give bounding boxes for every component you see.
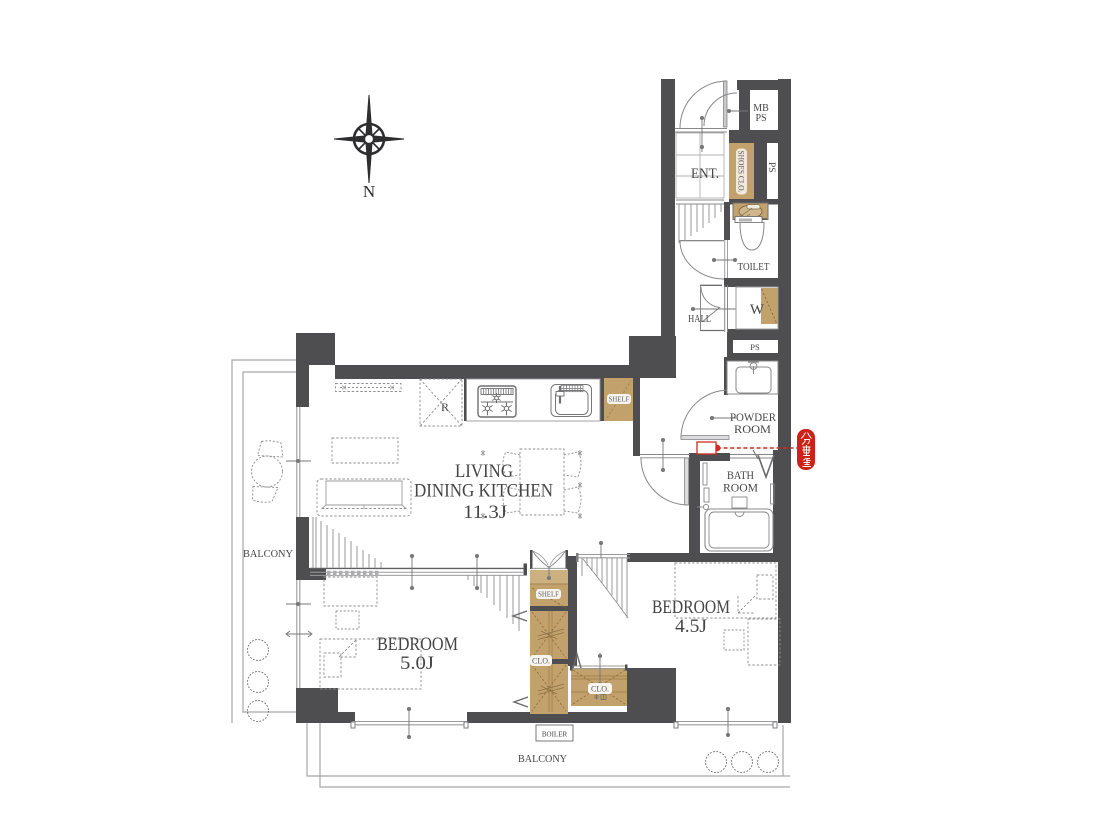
svg-text:ROOM: ROOM [734, 424, 771, 436]
svg-text:BALCONY: BALCONY [518, 754, 567, 765]
svg-text:HALL: HALL [688, 313, 711, 325]
svg-text:BEDROOM: BEDROOM [377, 634, 458, 655]
svg-text:PS: PS [755, 113, 766, 124]
svg-text:SHELF: SHELF [609, 397, 630, 404]
svg-text:CLO.: CLO. [532, 657, 550, 666]
svg-text:BEDROOM: BEDROOM [652, 597, 730, 618]
svg-text:DINING KITCHEN: DINING KITCHEN [414, 481, 553, 502]
svg-text:BALCONY: BALCONY [243, 549, 293, 560]
svg-text:SHELF: SHELF [538, 592, 559, 599]
svg-text:5.0J: 5.0J [400, 653, 434, 674]
svg-text:4.5J: 4.5J [675, 616, 707, 637]
svg-text:LIVING: LIVING [455, 461, 513, 482]
svg-text:CLO.: CLO. [591, 685, 609, 694]
svg-text:PS: PS [766, 162, 776, 173]
svg-text:PS: PS [750, 342, 760, 352]
svg-text:BATH: BATH [727, 470, 754, 482]
svg-text:BOILER: BOILER [542, 731, 568, 739]
svg-text:ROOM: ROOM [723, 483, 758, 495]
svg-text:N: N [363, 182, 375, 201]
svg-text:ENT.: ENT. [691, 166, 719, 182]
svg-text:SHOES CLO.: SHOES CLO. [737, 151, 746, 193]
svg-text:11.3J: 11.3J [463, 502, 507, 523]
svg-text:POWDER: POWDER [730, 412, 776, 424]
svg-text:R: R [441, 400, 449, 414]
svg-text:TOILET: TOILET [738, 261, 770, 273]
svg-text:W: W [750, 302, 765, 318]
